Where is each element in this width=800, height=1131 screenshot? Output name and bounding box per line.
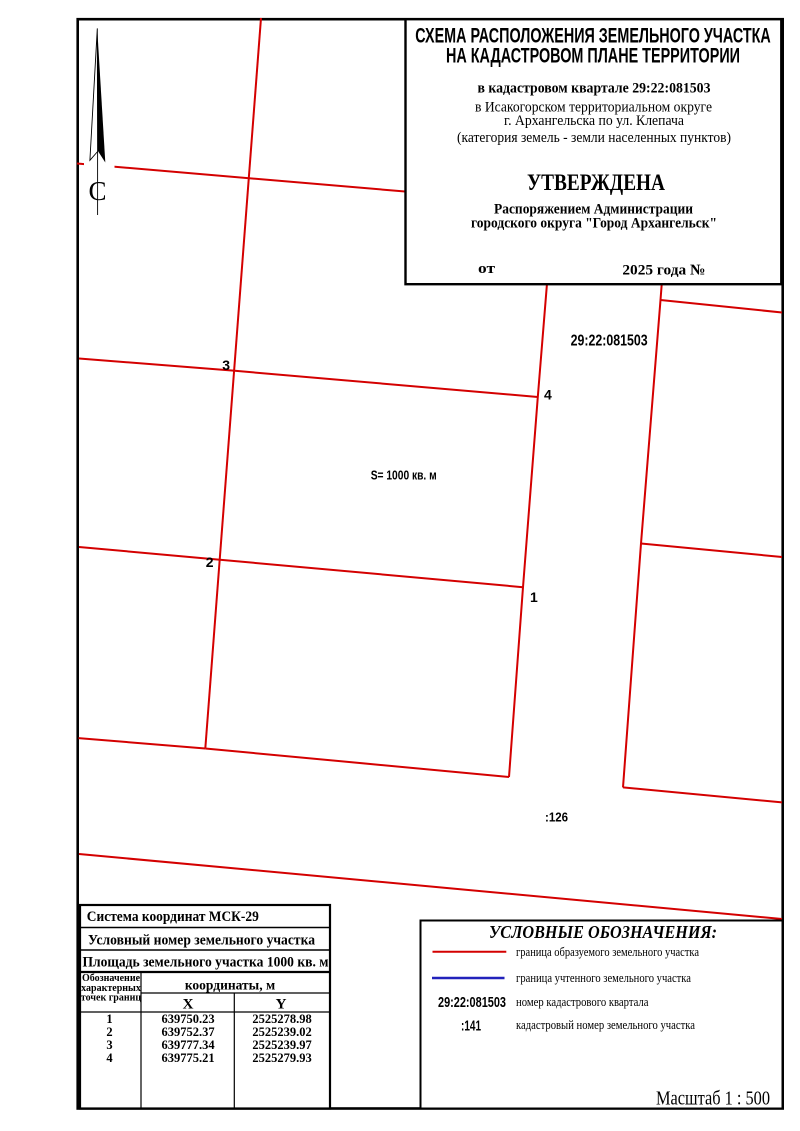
svg-text:1: 1 bbox=[106, 1012, 112, 1026]
svg-text:2: 2 bbox=[206, 554, 214, 570]
svg-text:639775.21: 639775.21 bbox=[161, 1051, 214, 1065]
svg-text:Система координат МСК-29: Система координат МСК-29 bbox=[87, 909, 259, 925]
svg-text:С: С bbox=[88, 176, 106, 206]
svg-text:2525239.02: 2525239.02 bbox=[252, 1025, 311, 1039]
svg-text:Масштаб 1 : 500: Масштаб 1 : 500 bbox=[656, 1087, 770, 1109]
svg-text::126: :126 bbox=[545, 810, 568, 825]
svg-text:Условный номер земельного учас: Условный номер земельного участка bbox=[88, 932, 315, 948]
svg-text:кадастровый номер земельного у: кадастровый номер земельного участка bbox=[516, 1018, 695, 1032]
svg-text:(категория земель - земли насе: (категория земель - земли населенных пун… bbox=[457, 130, 731, 146]
svg-text:координаты, м: координаты, м bbox=[185, 978, 275, 993]
svg-text:4: 4 bbox=[544, 387, 552, 403]
svg-text:граница образуемого земельного: граница образуемого земельного участка bbox=[516, 945, 699, 959]
svg-text:2525279.93: 2525279.93 bbox=[252, 1051, 311, 1065]
svg-text:639750.23: 639750.23 bbox=[161, 1012, 214, 1026]
svg-text:номер кадастрового квартала: номер кадастрового квартала bbox=[516, 995, 649, 1009]
svg-text::141: :141 bbox=[461, 1019, 481, 1035]
svg-text:городского округа "Город Архан: городского округа "Город Архангельск" bbox=[471, 215, 717, 231]
svg-text:1: 1 bbox=[530, 589, 538, 605]
svg-text:2525278.98: 2525278.98 bbox=[252, 1012, 311, 1026]
svg-text:2: 2 bbox=[106, 1025, 112, 1039]
svg-text:3: 3 bbox=[222, 357, 230, 373]
svg-text:УСЛОВНЫЕ ОБОЗНАЧЕНИЯ:: УСЛОВНЫЕ ОБОЗНАЧЕНИЯ: bbox=[489, 922, 717, 942]
svg-text:3: 3 bbox=[106, 1038, 112, 1052]
svg-text:НА КАДАСТРОВОМ ПЛАНЕ ТЕРРИТОРИ: НА КАДАСТРОВОМ ПЛАНЕ ТЕРРИТОРИИ bbox=[446, 44, 740, 67]
svg-text:2025 года №: 2025 года № bbox=[622, 263, 705, 279]
svg-text:в кадастровом квартале 29:22:0: в кадастровом квартале 29:22:081503 bbox=[478, 81, 711, 97]
svg-text:X: X bbox=[183, 997, 194, 1013]
svg-text:4: 4 bbox=[106, 1051, 113, 1065]
svg-text:S= 1000 кв. м: S= 1000 кв. м bbox=[371, 469, 437, 483]
svg-text:29:22:081503: 29:22:081503 bbox=[438, 995, 506, 1011]
svg-text:УТВЕРЖДЕНА: УТВЕРЖДЕНА bbox=[527, 170, 665, 195]
svg-text:г. Архангельска по ул. Клепача: г. Архангельска по ул. Клепача bbox=[504, 113, 685, 129]
svg-text:Площадь земельного участка 100: Площадь земельного участка 1000 кв. м bbox=[83, 954, 329, 970]
svg-text:точек границ: точек границ bbox=[81, 993, 141, 1004]
svg-text:29:22:081503: 29:22:081503 bbox=[571, 333, 648, 350]
svg-text:2525239.97: 2525239.97 bbox=[252, 1038, 311, 1052]
svg-text:граница учтенного земельного у: граница учтенного земельного участка bbox=[516, 971, 691, 985]
svg-text:639777.34: 639777.34 bbox=[161, 1038, 215, 1052]
svg-text:от: от bbox=[478, 261, 495, 277]
svg-text:Y: Y bbox=[276, 997, 287, 1013]
svg-text:639752.37: 639752.37 bbox=[161, 1025, 214, 1039]
